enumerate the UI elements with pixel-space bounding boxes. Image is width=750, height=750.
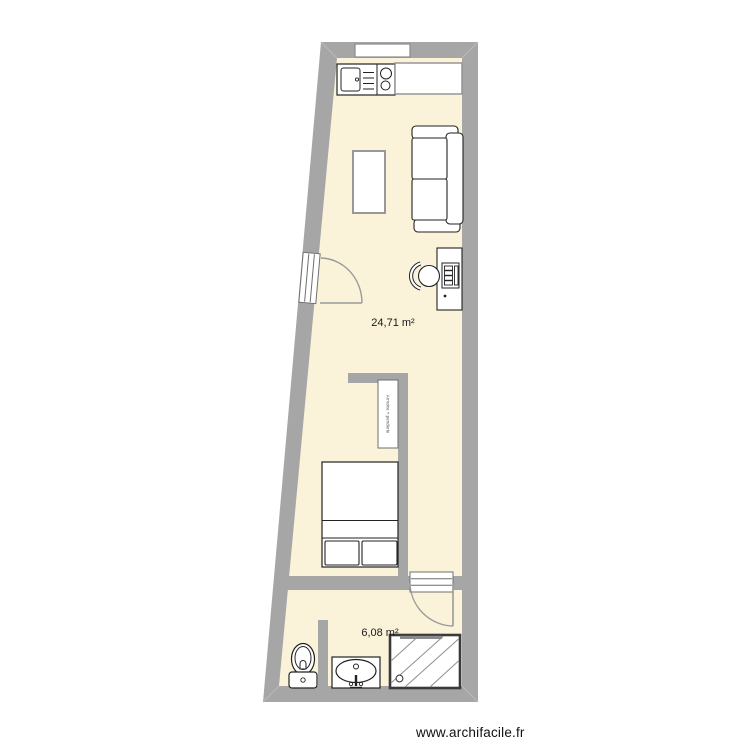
toilet[interactable] [289, 644, 317, 689]
sofa-cushion [412, 138, 447, 179]
monitor-icon [455, 266, 459, 285]
sofa[interactable] [412, 126, 463, 232]
floor-plan-svg: Armoire + penderie [0, 0, 750, 750]
archifacile-footer-link[interactable]: www.archifacile.fr [416, 725, 525, 740]
sofa-cushion [412, 179, 447, 220]
mouse-icon [444, 295, 447, 298]
table[interactable] [353, 151, 385, 213]
bathroom-door-glazing [410, 572, 453, 592]
alcove-wall-vertical [398, 373, 408, 576]
pillow [362, 541, 397, 565]
sink-basin [341, 68, 360, 91]
bed[interactable] [322, 462, 398, 567]
wardrobe[interactable]: Armoire + penderie [378, 380, 398, 448]
sofa-backrest [446, 133, 463, 224]
wardrobe-label: Armoire + penderie [386, 395, 391, 434]
entrance-door-glazing [299, 252, 320, 303]
pillow [325, 541, 359, 565]
kitchen-counter[interactable] [395, 63, 462, 94]
shower[interactable] [390, 635, 460, 688]
room-area-label-bathroom: 6,08 m² [361, 627, 399, 639]
top-window[interactable] [355, 44, 410, 57]
toilet-tank [289, 672, 317, 688]
room-area-label-living: 24,71 m² [371, 317, 415, 329]
bathroom-sink[interactable] [332, 657, 380, 688]
floor-plan-canvas: Armoire + penderie [0, 0, 750, 750]
shower-drain-icon [396, 675, 403, 682]
toilet-flush-icon [300, 661, 306, 670]
bathroom-stub-wall [318, 620, 328, 688]
shower-door-bar [400, 636, 442, 639]
chair-seat [419, 266, 440, 287]
desk[interactable] [437, 248, 462, 310]
kitchen-sink-unit[interactable] [337, 64, 395, 95]
